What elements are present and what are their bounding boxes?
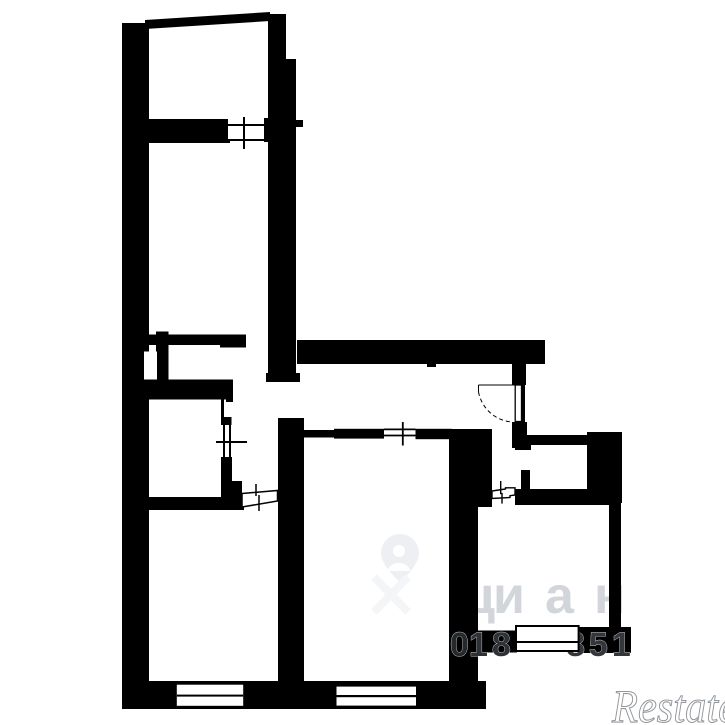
- svg-text:Restate: Restate: [611, 681, 725, 725]
- svg-text:а: а: [545, 567, 575, 625]
- svg-text:и: и: [493, 567, 525, 625]
- svg-text:18: 18: [469, 626, 515, 664]
